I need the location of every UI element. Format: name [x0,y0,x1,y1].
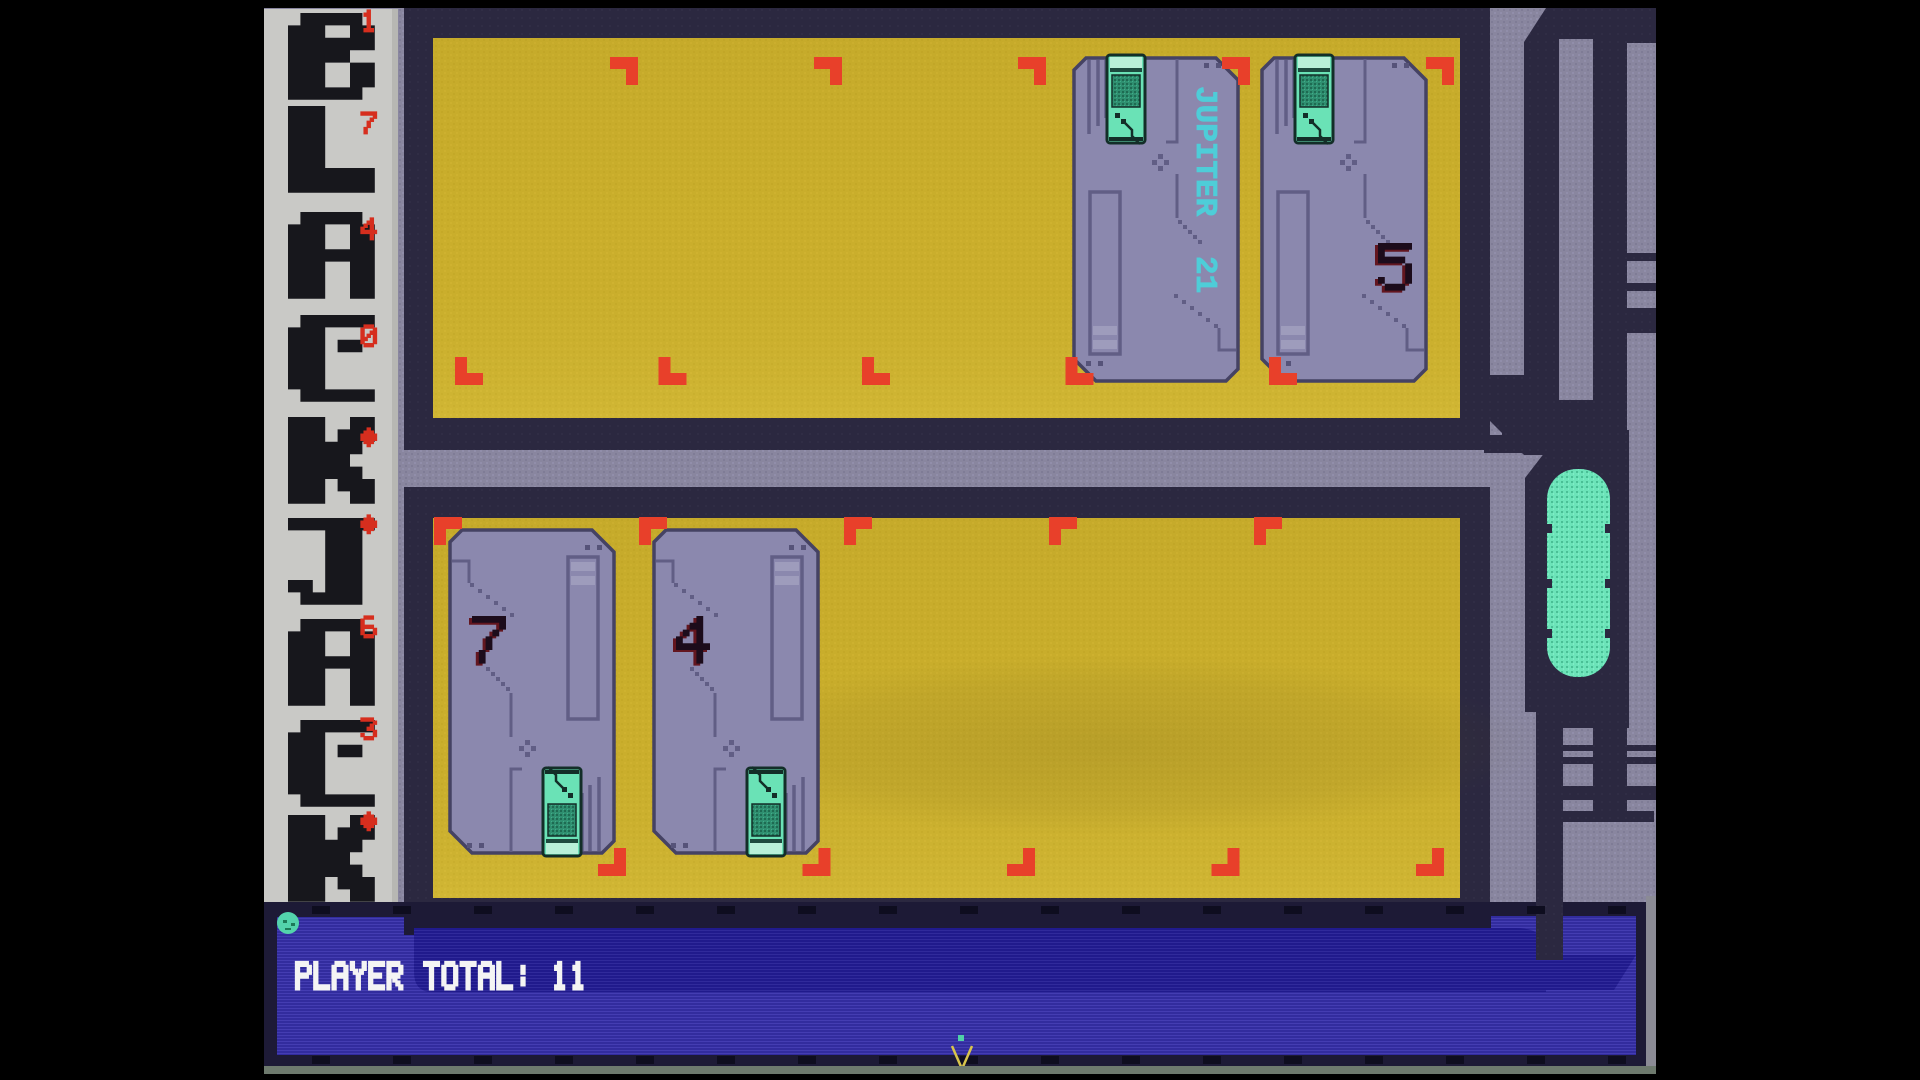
svg-text:21: 21 [1187,256,1222,293]
svg-text:JUPITER: JUPITER [1187,86,1222,217]
